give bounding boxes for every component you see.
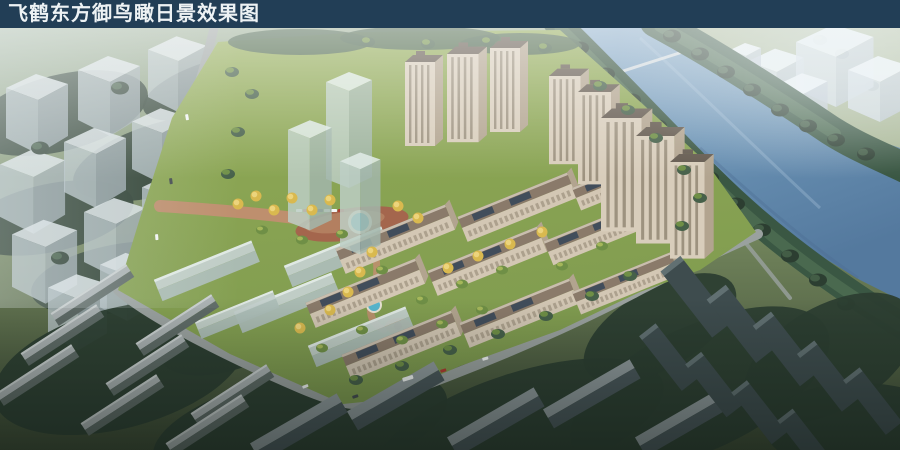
- tree: [781, 250, 799, 263]
- tree: [623, 271, 637, 281]
- tree: [556, 262, 568, 271]
- tree: [496, 266, 508, 275]
- tree: [675, 221, 689, 231]
- haze-top-right: [600, 28, 900, 218]
- tree: [456, 280, 468, 289]
- autumn-tree: [287, 193, 298, 204]
- haze-left: [0, 28, 240, 308]
- shadow-bottom: [0, 298, 900, 450]
- autumn-tree: [343, 287, 354, 298]
- autumn-tree: [393, 201, 404, 212]
- rendering-title: 飞鹤东方御鸟瞰日景效果图: [8, 0, 260, 28]
- autumn-tree: [443, 263, 454, 274]
- autumn-tree: [473, 251, 484, 262]
- tree: [376, 266, 388, 275]
- tree: [256, 226, 268, 235]
- autumn-tree: [537, 227, 548, 238]
- tree: [596, 242, 608, 251]
- vehicle: [331, 209, 337, 212]
- autumn-tree: [367, 247, 378, 258]
- tree: [336, 230, 348, 239]
- autumn-tree: [325, 195, 336, 206]
- autumn-tree: [505, 239, 516, 250]
- autumn-tree: [251, 191, 262, 202]
- title-bar: 飞鹤东方御鸟瞰日景效果图: [0, 0, 900, 28]
- autumn-tree: [269, 205, 280, 216]
- tree: [296, 236, 308, 245]
- aerial-rendering: [0, 28, 900, 450]
- rendering-image: 飞鹤东方御鸟瞰日景效果图: [0, 0, 900, 450]
- autumn-tree: [355, 267, 366, 278]
- aerial-scene-canvas: [0, 28, 900, 450]
- autumn-tree: [413, 213, 424, 224]
- tree: [809, 274, 827, 287]
- autumn-tree: [307, 205, 318, 216]
